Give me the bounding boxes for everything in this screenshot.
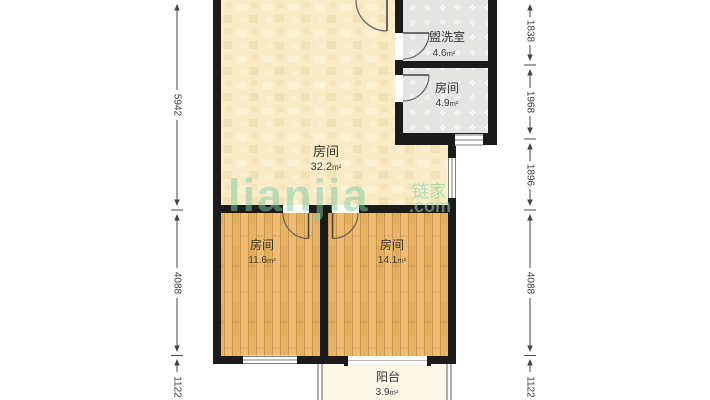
watermark-logo-text: lianjia	[228, 170, 370, 221]
room-11-6-floor	[221, 213, 320, 356]
balcony-label: 阳台	[376, 369, 400, 384]
window-bottom-left	[243, 356, 297, 365]
wall-washroom-bottom	[395, 61, 497, 68]
dim-left-1122: 1122	[172, 376, 183, 398]
dim-right-1968: 1968	[525, 91, 536, 114]
room-4-9-area: 4.9m²	[436, 98, 459, 109]
room-11-6-label: 房间	[250, 237, 274, 252]
room-4-9-door-opening	[395, 75, 403, 102]
washroom-area: 4.6m²	[433, 48, 456, 59]
washroom-label: 盥洗室	[429, 29, 465, 44]
room-32-label: 房间	[313, 144, 339, 159]
dim-right-1122: 1122	[525, 376, 536, 398]
room-14-1-area: 14.1m²	[378, 255, 407, 266]
dim-left-4088: 4088	[172, 272, 183, 295]
room-4-9-label: 房间	[435, 80, 459, 95]
room-11-6-area: 11.6m²	[248, 255, 276, 266]
watermark-suffix: .com	[409, 196, 451, 216]
wall-rooms-divider	[320, 213, 328, 364]
balcony-area: 3.9m²	[376, 387, 399, 398]
wall-balcony-jamb-right	[427, 356, 431, 366]
balcony-rail-right	[447, 364, 452, 400]
balcony-rail-left	[318, 364, 323, 400]
wall-left	[213, 0, 221, 364]
window-right-wall	[448, 158, 457, 198]
dim-right-4088: 4088	[525, 272, 536, 295]
wall-mid-vertical	[395, 0, 403, 145]
floor-plan-screenshot: 房间 32.2m² 盥洗室 4.6m² 房间 4.9m² 房间 11.6m² 房…	[0, 0, 710, 400]
wall-right-outer	[488, 0, 497, 145]
wall-bottom-right	[427, 356, 456, 364]
dim-left-5942: 5942	[172, 94, 183, 117]
floor-plan: 房间 32.2m² 盥洗室 4.6m² 房间 4.9m² 房间 11.6m² 房…	[0, 0, 710, 400]
wall-balcony-jamb-left	[344, 356, 348, 366]
dim-right-1896: 1896	[525, 164, 536, 187]
dim-right-1838: 1838	[525, 20, 536, 43]
room-14-1-label: 房间	[380, 237, 404, 252]
washroom-door-opening	[395, 33, 403, 60]
window-room49-bottom	[455, 134, 483, 146]
